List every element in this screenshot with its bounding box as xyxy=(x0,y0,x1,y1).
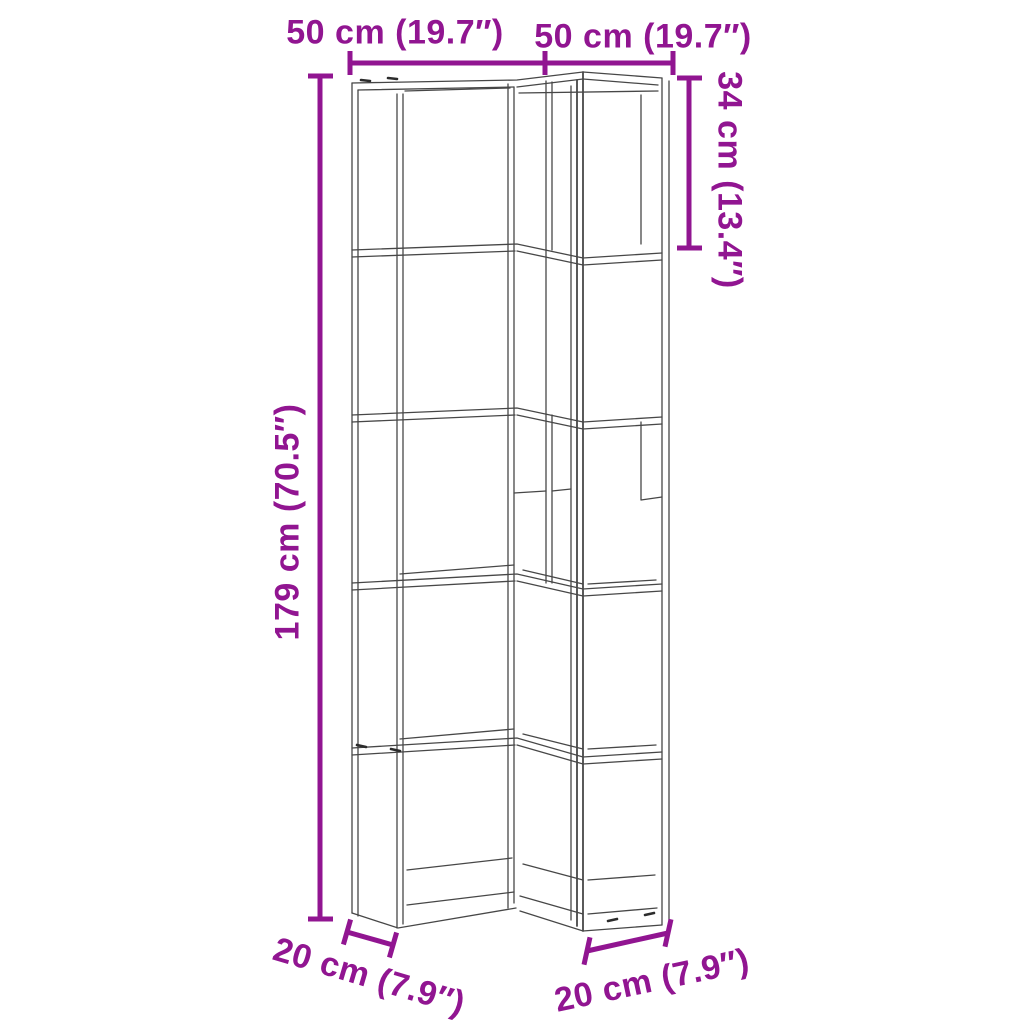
bookshelf-wireframe xyxy=(352,72,669,931)
corner-mid-lines xyxy=(514,489,571,493)
dimension-diagram: 50 cm (19.7″) 50 cm (19.7″) 34 cm (13.4″… xyxy=(0,0,1024,1024)
bottom-right-depth-dimension-line xyxy=(584,919,671,964)
top-panel xyxy=(352,72,662,93)
total-height-label: 179 cm (70.5″) xyxy=(269,404,308,641)
fitting-marks xyxy=(357,78,654,921)
left-height-dimension-line xyxy=(308,76,333,919)
dimension-lines xyxy=(308,51,702,965)
shelf-3 xyxy=(352,565,662,596)
shelf-1 xyxy=(352,244,662,265)
top-left-width-label: 50 cm (19.7″) xyxy=(286,14,503,53)
diagram-svg xyxy=(0,0,1024,1024)
right-height-dimension-line xyxy=(677,78,702,248)
vertical-edges xyxy=(352,72,669,931)
top-right-width-label: 50 cm (19.7″) xyxy=(534,18,751,57)
shelf-4 xyxy=(352,729,662,764)
right-section-height-label: 34 cm (13.4″) xyxy=(710,71,749,288)
shelf-2 xyxy=(352,408,662,429)
